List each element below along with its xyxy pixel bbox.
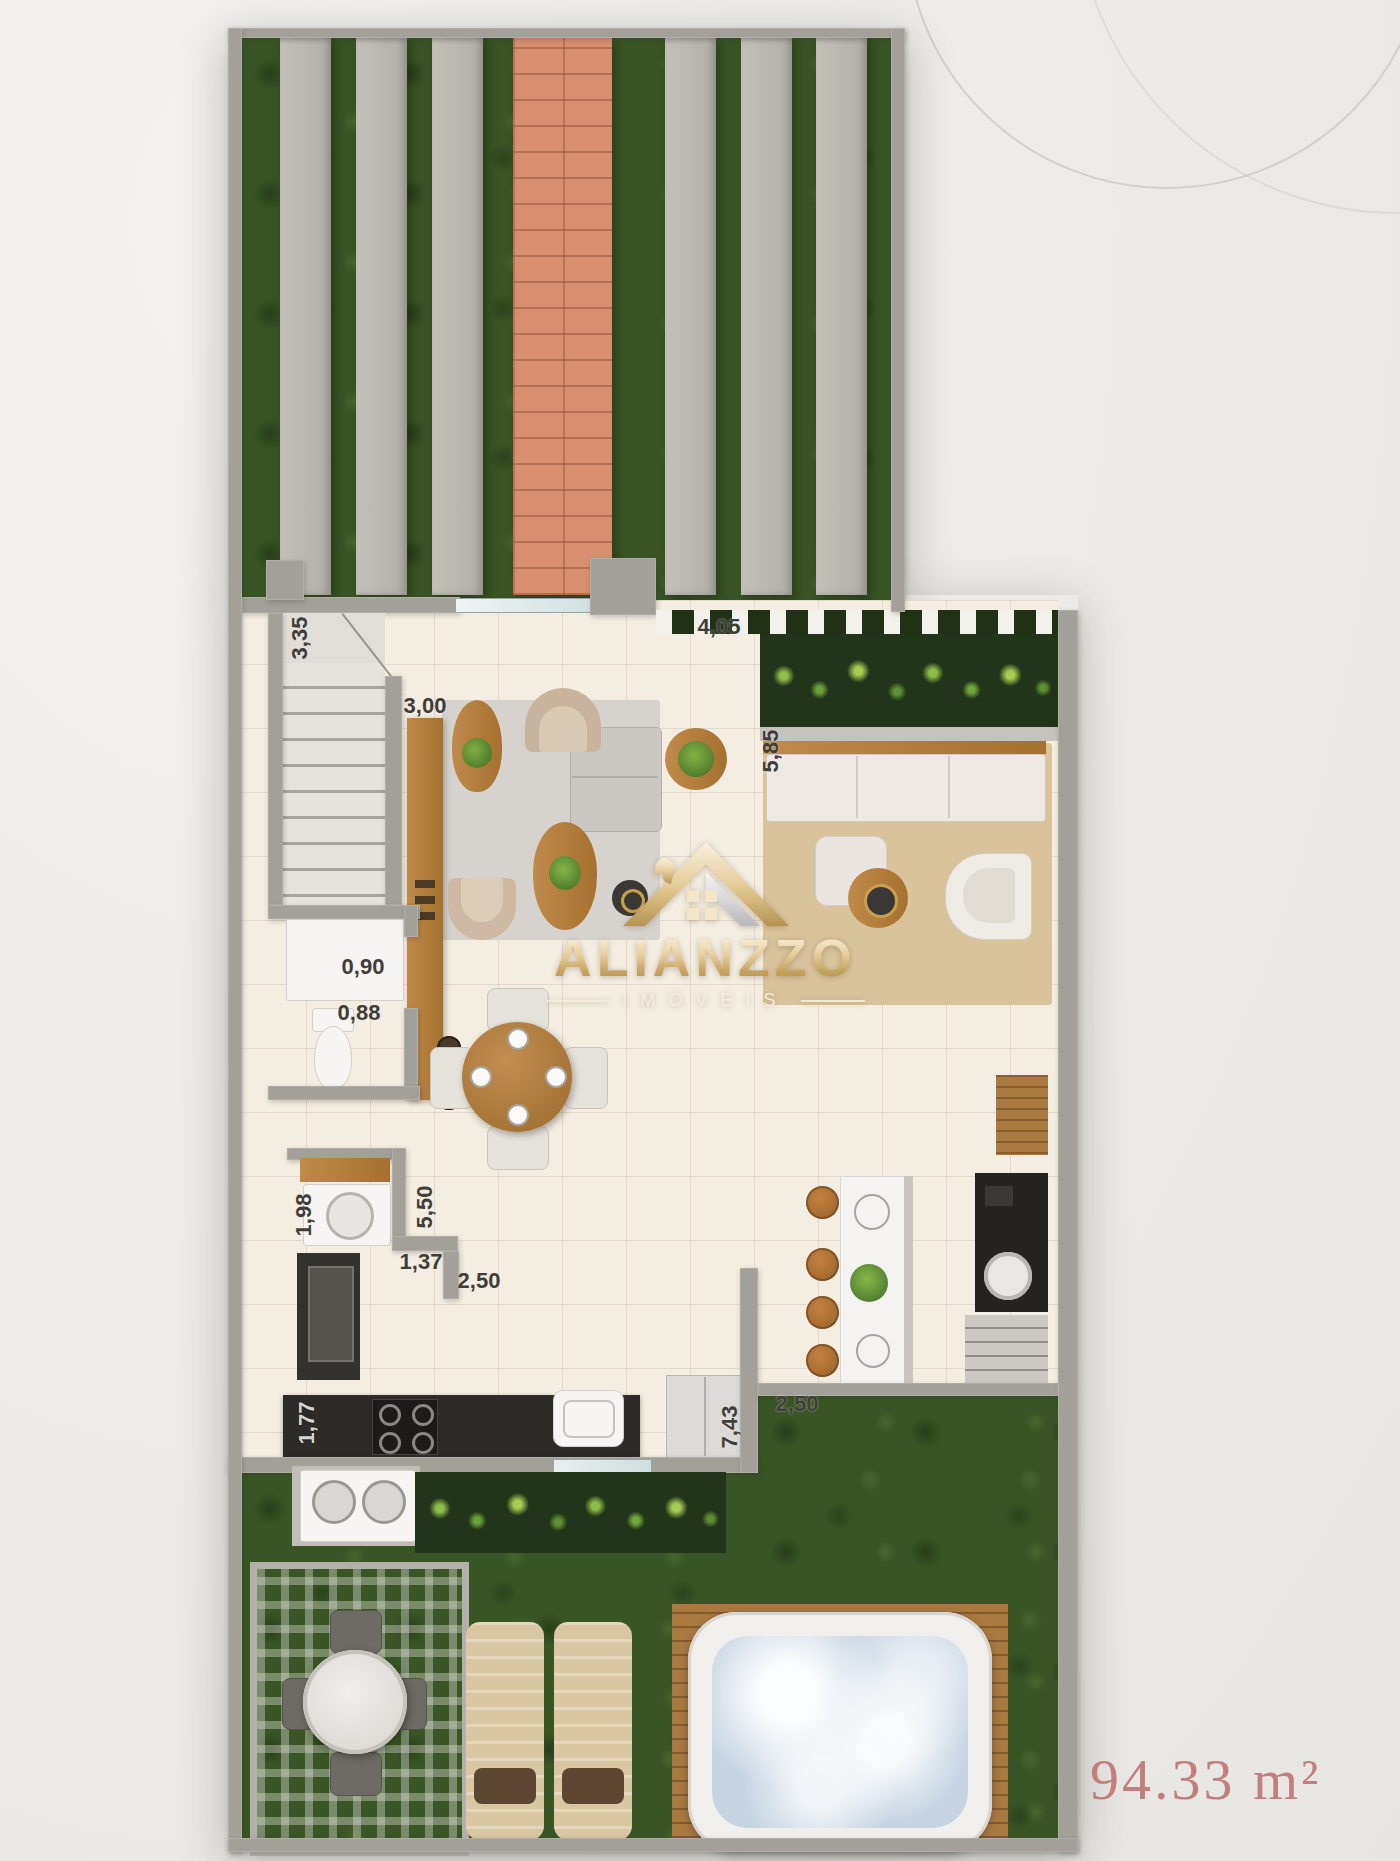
terrace-armchair-seat [963,868,1015,923]
patio-chair [330,1752,382,1796]
patio-chair [330,1610,382,1654]
side-table-plant-icon [462,738,492,768]
garden-wall-right [891,28,905,612]
living-sofa-seam [572,776,658,778]
dim-living-width: 4,05 [690,614,748,640]
garden-paver-strip [816,38,867,595]
island-edge [904,1176,913,1388]
bbq-sink-icon [984,1252,1032,1300]
planter-sill [760,727,1058,741]
outer-wall-bottom [228,1838,1078,1852]
grill-shelf [965,1315,1048,1386]
plate-icon [507,1104,529,1126]
brick-walkway [513,38,612,595]
refrigerator-seam [704,1377,706,1456]
dim-stairs: 3,35 [277,615,323,661]
dim-hall: 1,37 [392,1249,450,1275]
island-stool-icon [806,1186,839,1219]
laundry-shelf [300,1158,390,1182]
bbq-vent [985,1186,1013,1206]
tagline-rule-left [546,1000,610,1002]
plate-icon [507,1028,529,1050]
tv-sofa-seam [948,756,950,818]
deck-strip [996,1075,1048,1155]
garden-paver-strip [280,38,331,595]
brand-watermark: ALIANZZO IMÓVEIS [533,834,878,1011]
sun-lounger [466,1622,544,1840]
sofa-back-shelf [763,741,1046,754]
patio-table [303,1650,407,1754]
island-stool-icon [806,1344,839,1377]
burner-icon [379,1432,401,1454]
dim-kitchen-depth: 5,50 [402,1184,448,1230]
dining-chair [487,1126,549,1170]
window-planter [760,634,1058,727]
entry-pillar-left [266,560,304,600]
laundry-tub-bowl-icon [312,1480,356,1524]
lounger-pillow [562,1768,624,1804]
bath-wall-right-a [404,905,418,937]
dim-bathroom-a: 0,90 [334,954,392,980]
lounger-pillow [474,1768,536,1804]
dim-terrace: 2,50 [768,1391,826,1417]
island-stool-icon [806,1296,839,1329]
dim-bathroom-b: 0,88 [330,1000,388,1026]
entry-pillar-right [590,558,656,615]
plant-icon [678,741,714,777]
armchair-bottom-seat [461,878,503,922]
burner-icon [412,1432,434,1454]
brand-tagline: IMÓVEIS [622,990,788,1011]
laundry-tub-bowl-icon [362,1480,406,1524]
hot-tub-water [712,1636,968,1828]
tagline-rule-right [801,1000,865,1002]
dim-kitchen-run: 7,43 [707,1404,753,1450]
washer-drum-icon [326,1192,374,1240]
roof-logo-icon [613,834,799,930]
armchair-top-seat [539,706,587,752]
garden-paver-strip [665,38,716,595]
garden-paver-strip [741,38,792,595]
tv-sofa-seam [856,756,858,818]
garden-paver-strip [356,38,407,595]
burner-icon [379,1404,401,1426]
island-plant-icon [850,1264,888,1302]
dim-living-top: 3,00 [396,693,454,719]
plate-icon [470,1066,492,1088]
outer-wall-top [228,28,905,38]
area-label: 94.33 m² [1090,1746,1322,1813]
sun-lounger [554,1622,632,1840]
burner-icon [412,1404,434,1426]
garden-paver-strip [432,38,483,595]
entry-glass-door [455,598,594,613]
plate-icon [545,1066,567,1088]
outer-wall-right [1058,610,1078,1852]
sink-bowl-icon [563,1400,615,1438]
island-stool-icon [806,1248,839,1281]
back-planter [415,1472,726,1553]
place-setting-icon [854,1194,890,1230]
oven-door [308,1266,354,1362]
place-setting-icon [856,1334,890,1368]
kitchen-window [553,1459,652,1473]
dim-counter: 1,77 [284,1400,330,1446]
tv-sofa [766,754,1046,822]
dim-laundry: 1,98 [281,1192,327,1238]
bath-wall-top [268,905,420,919]
dim-tv-room-depth: 5,85 [748,728,794,774]
bath-wall-right-b [404,1008,418,1098]
toilet-bowl [314,1026,352,1090]
brand-name: ALIANZZO [533,932,878,984]
bath-wall-bottom [268,1086,420,1100]
outer-wall-left [228,28,242,1852]
dim-dining: 2,50 [450,1268,508,1294]
staircase-treads [283,663,385,905]
floor-plan-canvas: 3,35 3,00 4,05 5,85 0,90 0,88 1,98 5,50 … [0,0,1400,1861]
